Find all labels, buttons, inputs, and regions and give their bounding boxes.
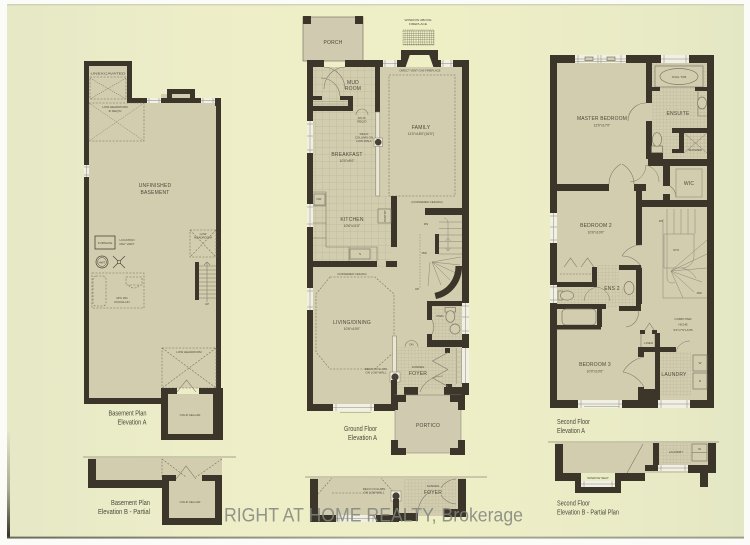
svg-text:LINEN: LINEN — [644, 341, 653, 345]
svg-text:LIVING/DINING: LIVING/DINING — [333, 320, 371, 326]
svg-text:STO: STO — [673, 248, 680, 252]
svg-text:Elevation A: Elevation A — [118, 420, 147, 427]
svg-text:PORTICO: PORTICO — [416, 423, 440, 429]
svg-text:MASTER BEDROOM: MASTER BEDROOM — [577, 116, 627, 122]
svg-text:REQ'D: REQ'D — [357, 119, 367, 123]
svg-text:MAY VARY: MAY VARY — [120, 242, 135, 246]
svg-text:FIREPLACE: FIREPLACE — [409, 22, 427, 26]
svg-text:Second Floor: Second Floor — [557, 501, 591, 508]
svg-text:11'0"x18'0"(16'0"): 11'0"x18'0"(16'0") — [408, 132, 434, 136]
svg-text:10'0"x9'0": 10'0"x9'0" — [340, 159, 356, 163]
svg-text:10'6"x10'0": 10'6"x10'0" — [588, 231, 606, 235]
svg-text:9'4"x7'0"LAYB: 9'4"x7'0"LAYB — [674, 328, 693, 332]
svg-text:Elevation A: Elevation A — [557, 428, 585, 435]
svg-text:S: S — [359, 252, 361, 256]
svg-text:OVAL TUB: OVAL TUB — [672, 75, 686, 79]
svg-text:Elevation A: Elevation A — [348, 435, 377, 442]
svg-text:FOYER: FOYER — [409, 371, 427, 377]
svg-text:ENSUITE: ENSUITE — [666, 111, 690, 117]
svg-text:Basement Plan: Basement Plan — [109, 411, 147, 418]
svg-text:Elevation B - Partial Plan: Elevation B - Partial Plan — [557, 510, 619, 517]
svg-text:W: W — [699, 361, 702, 365]
svg-text:10'6"x19'0": 10'6"x19'0" — [344, 327, 362, 331]
svg-text:COMPUTER: COMPUTER — [674, 317, 692, 321]
svg-text:BEDROOM 2: BEDROOM 2 — [580, 223, 612, 229]
svg-text:KITCHEN: KITCHEN — [340, 217, 364, 223]
svg-text:LAUNDRY: LAUNDRY — [669, 450, 683, 454]
svg-text:ON LOW WALL: ON LOW WALL — [365, 371, 386, 375]
svg-text:W: W — [698, 447, 701, 451]
svg-text:LOW WALL: LOW WALL — [356, 139, 372, 143]
svg-text:ON LOW WALL: ON LOW WALL — [363, 491, 384, 495]
svg-text:PWD: PWD — [437, 314, 445, 318]
svg-text:BASEMENT: BASEMENT — [140, 190, 169, 196]
svg-text:BEDROOM 3: BEDROOM 3 — [579, 362, 611, 368]
svg-text:ROUGH-IN: ROUGH-IN — [114, 300, 129, 304]
svg-text:ROOM: ROOM — [345, 86, 361, 92]
svg-text:SUNKEN: SUNKEN — [412, 365, 425, 369]
svg-text:DIRECT VENT GAS FIREPLACE: DIRECT VENT GAS FIREPLACE — [400, 69, 441, 73]
svg-text:PORCH: PORCH — [323, 40, 342, 46]
svg-text:Ground Floor: Ground Floor — [344, 426, 378, 433]
svg-text:WIC: WIC — [684, 181, 695, 187]
svg-text:UNFINISHED: UNFINISHED — [139, 183, 172, 189]
svg-text:COFFERED CEILING: COFFERED CEILING — [337, 272, 367, 276]
svg-text:RIGHT AT HOME REALTY, Brokerag: RIGHT AT HOME REALTY, Brokerage — [224, 505, 523, 527]
svg-text:BREAKFAST: BREAKFAST — [331, 152, 362, 158]
svg-text:FAMILY: FAMILY — [412, 125, 431, 131]
svg-text:LAUNDRY: LAUNDRY — [661, 372, 687, 378]
svg-text:COLD CELLAR: COLD CELLAR — [180, 413, 202, 417]
svg-text:FURNACE: FURNACE — [98, 241, 113, 245]
svg-text:FOYER: FOYER — [424, 490, 442, 496]
svg-text:DN: DN — [424, 222, 428, 226]
svg-text:HEADROOM: HEADROOM — [194, 235, 212, 239]
svg-text:Elevation B - Partial: Elevation B - Partial — [98, 509, 150, 516]
svg-text:NICHE: NICHE — [678, 323, 687, 327]
svg-text:PANTRY: PANTRY — [383, 210, 387, 222]
svg-text:12'0"x17'0": 12'0"x17'0" — [594, 124, 612, 128]
svg-text:UP: UP — [415, 287, 419, 291]
svg-text:10'6"x11'0": 10'6"x11'0" — [344, 224, 361, 228]
svg-text:ENS 2: ENS 2 — [604, 286, 619, 292]
svg-text:Second Floor: Second Floor — [557, 419, 591, 426]
svg-text:15R: 15R — [421, 251, 427, 255]
svg-text:SHOWER: SHOWER — [688, 148, 702, 152]
svg-text:SUNKEN: SUNKEN — [427, 484, 440, 488]
svg-text:UNEXCAVATED: UNEXCAVATED — [91, 72, 127, 76]
svg-text:DN: DN — [409, 343, 413, 347]
svg-text:15R: 15R — [696, 291, 702, 295]
svg-text:LOW HEADROOM: LOW HEADROOM — [176, 350, 202, 354]
svg-text:Basement Plan: Basement Plan — [111, 500, 150, 507]
svg-text:10'0"x10'0": 10'0"x10'0" — [587, 370, 605, 374]
svg-text:DN: DN — [659, 219, 663, 223]
svg-text:HWT: HWT — [99, 260, 106, 264]
svg-text:(COFFERED CEILING): (COFFERED CEILING) — [411, 200, 442, 204]
svg-text:WINDOW SEAT: WINDOW SEAT — [587, 476, 609, 480]
svg-text:UP: UP — [205, 302, 209, 306]
svg-text:IF REQ'D: IF REQ'D — [109, 109, 123, 113]
svg-text:DW: DW — [317, 197, 322, 201]
svg-text:COLD CELLAR: COLD CELLAR — [180, 500, 202, 504]
